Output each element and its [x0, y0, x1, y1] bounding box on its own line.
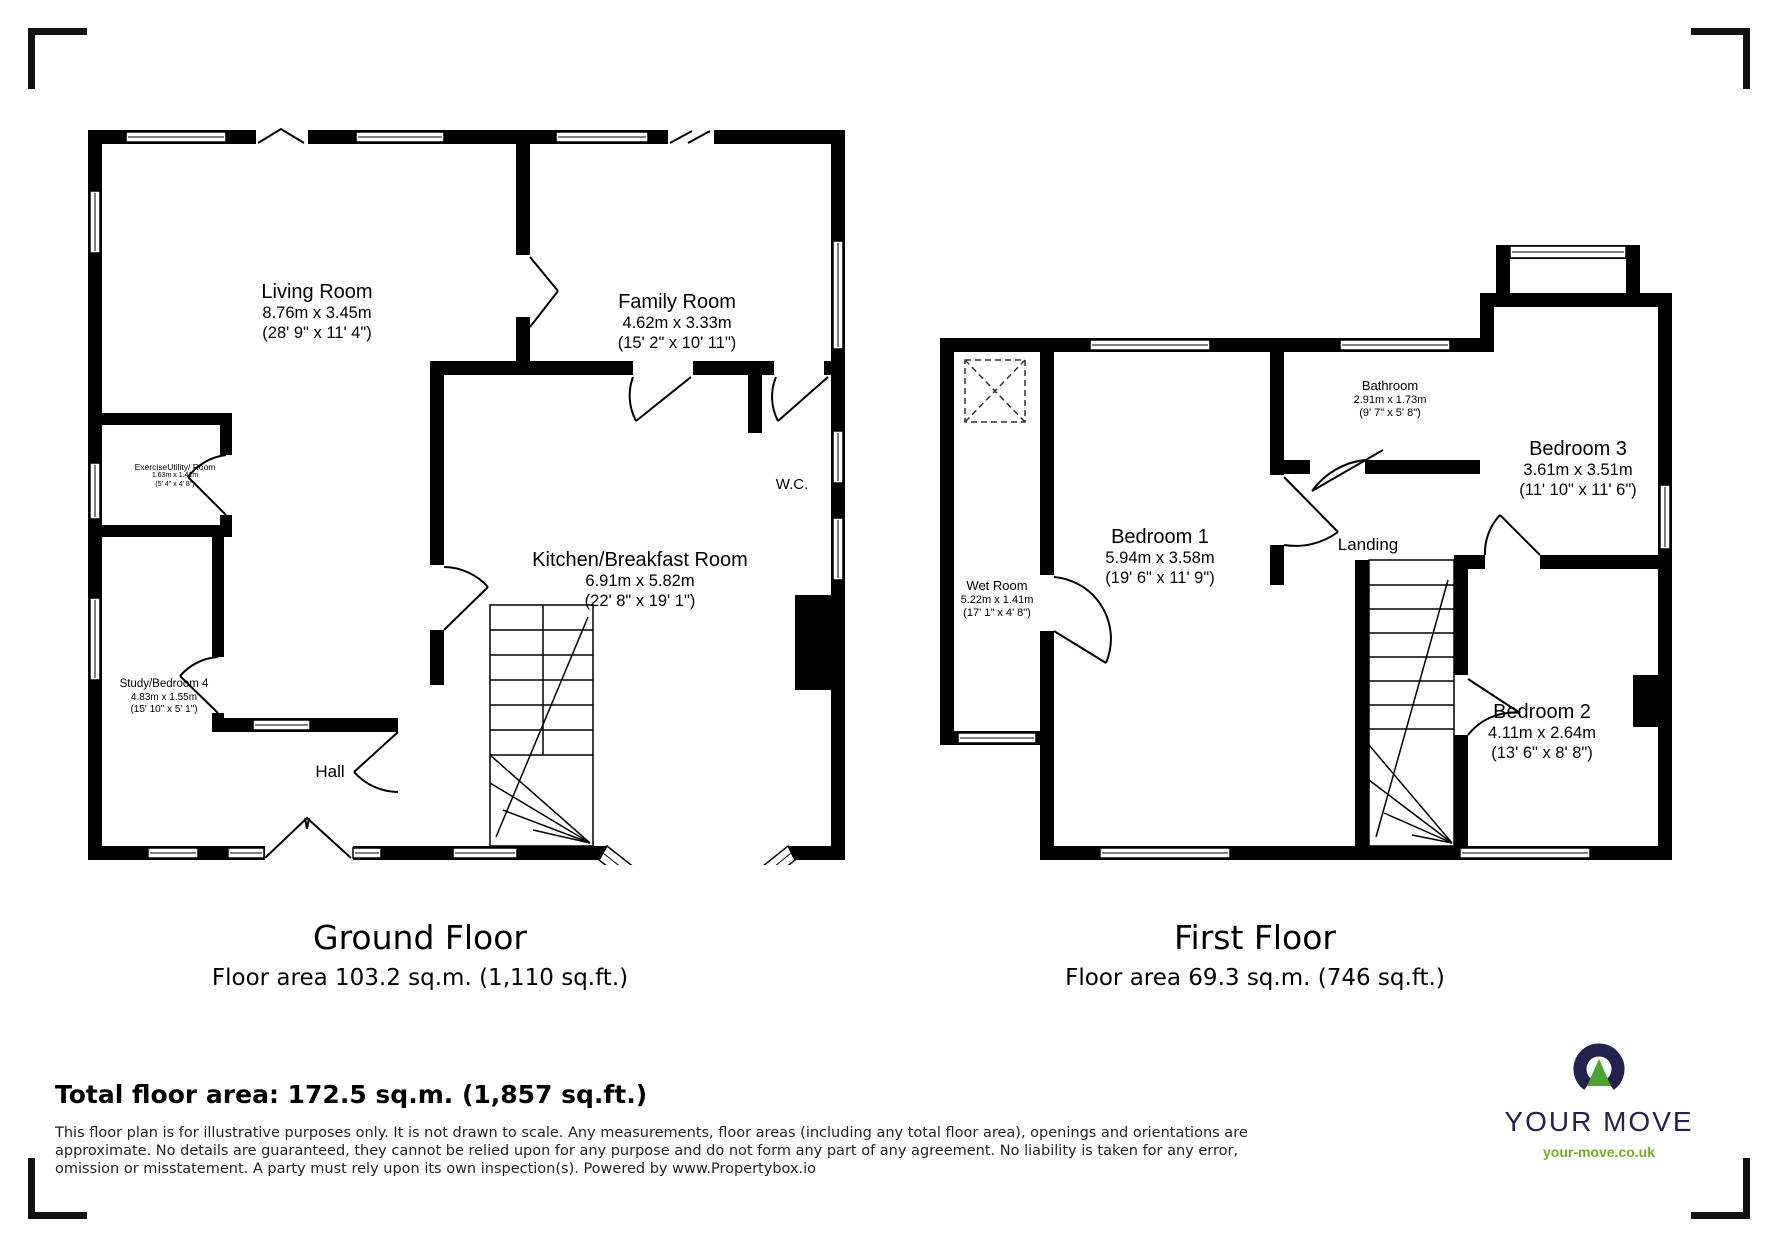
ground-floor-title: Ground Floor [120, 918, 720, 957]
logo-brand-text: YOUR MOVE [1490, 1106, 1708, 1138]
floorplan-page: Living Room 8.76m x 3.45m (28' 9" x 11' … [0, 0, 1771, 1239]
corner-mark-top-right [1691, 28, 1750, 89]
ground-floor-title-block: Ground Floor Floor area 103.2 sq.m. (1,1… [120, 918, 720, 991]
room-label-study-bedroom4: Study/Bedroom 4 4.83m x 1.55m (15' 10" x… [103, 678, 225, 716]
room-label-bathroom: Bathroom 2.91m x 1.73m (9' 7" x 5' 8") [1320, 378, 1460, 420]
room-label-bedroom2: Bedroom 2 4.11m x 2.64m (13' 6" x 8' 8") [1422, 700, 1662, 764]
room-label-bedroom3: Bedroom 3 3.61m x 3.51m (11' 10" x 11' 6… [1458, 437, 1698, 501]
first-floor-area: Floor area 69.3 sq.m. (746 sq.ft.) [955, 965, 1555, 991]
ground-window-midlines [95, 137, 838, 865]
logo-url-text: your-move.co.uk [1490, 1144, 1708, 1160]
your-move-logo-icon [1569, 1043, 1629, 1099]
corner-mark-top-left [28, 28, 87, 89]
ground-floor-plan [88, 125, 845, 865]
first-floor-title: First Floor [955, 918, 1555, 957]
disclaimer-text: This floor plan is for illustrative purp… [55, 1124, 1283, 1178]
room-label-kitchen: Kitchen/Breakfast Room 6.91m x 5.82m (22… [490, 548, 790, 612]
room-label-exercise-utility: ExerciseUtility/ Room 1.63m x 1.41m (5' … [115, 462, 235, 489]
corner-mark-bottom-right [1691, 1158, 1750, 1219]
first-floor-title-block: First Floor Floor area 69.3 sq.m. (746 s… [955, 918, 1555, 991]
room-label-living-room: Living Room 8.76m x 3.45m (28' 9" x 11' … [197, 280, 437, 344]
room-label-hall: Hall [280, 762, 380, 782]
ground-windows [90, 132, 843, 865]
room-label-wc: W.C. [762, 476, 822, 494]
ground-walls [88, 130, 845, 860]
wet-room-shower-box [965, 360, 1025, 422]
logo-triangle [1587, 1059, 1611, 1086]
room-label-landing: Landing [1308, 535, 1428, 555]
room-label-bedroom1: Bedroom 1 5.94m x 3.58m (19' 6" x 11' 9"… [1040, 525, 1280, 589]
ground-stairs [490, 605, 593, 846]
room-label-wet-room: Wet Room 5.22m x 1.41m (17' 1" x 4' 8") [947, 578, 1047, 620]
total-floor-area: Total floor area: 172.5 sq.m. (1,857 sq.… [55, 1080, 647, 1109]
ground-floor-area: Floor area 103.2 sq.m. (1,110 sq.ft.) [120, 965, 720, 991]
room-label-family-room: Family Room 4.62m x 3.33m (15' 2" x 10' … [557, 290, 797, 354]
your-move-logo: YOUR MOVE your-move.co.uk [1490, 1043, 1708, 1160]
